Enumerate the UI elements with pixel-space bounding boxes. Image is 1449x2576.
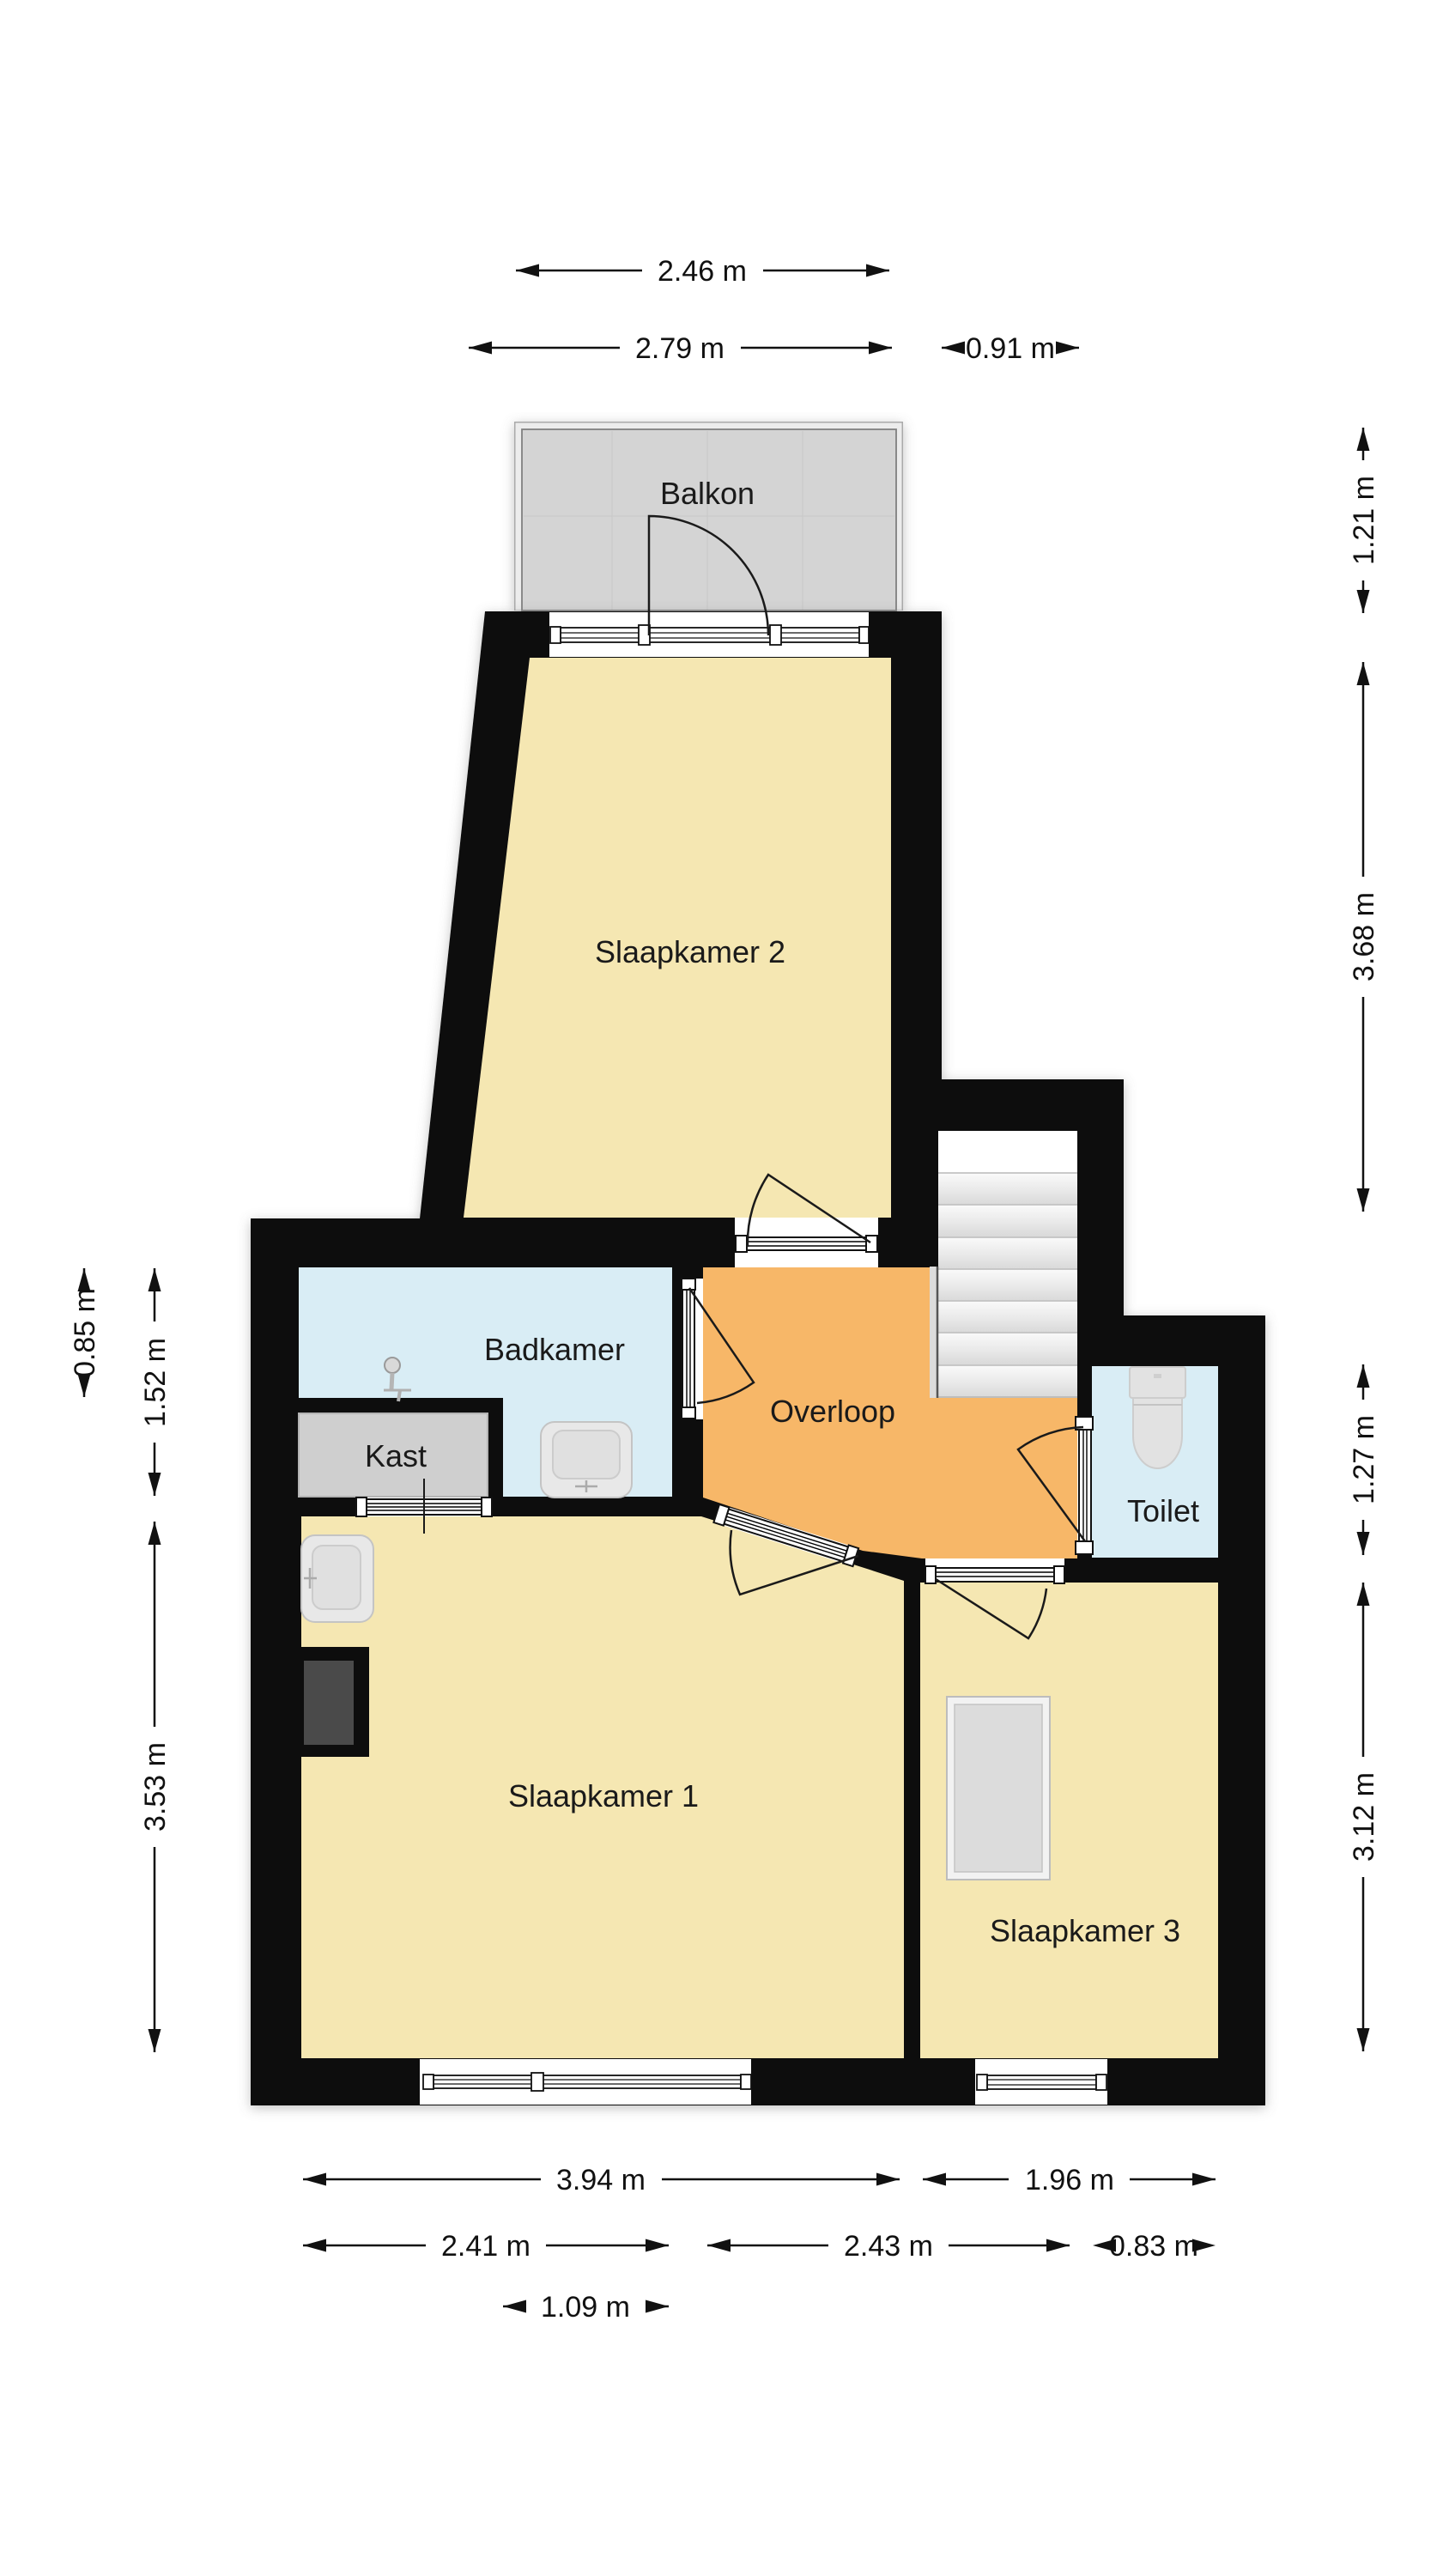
svg-text:3.94 m: 3.94 m <box>556 2164 646 2196</box>
svg-text:Overloop: Overloop <box>770 1394 895 1429</box>
svg-text:1.96 m: 1.96 m <box>1025 2164 1114 2196</box>
svg-text:2.46 m: 2.46 m <box>658 255 747 288</box>
svg-text:2.79 m: 2.79 m <box>635 332 724 365</box>
svg-text:1.21 m: 1.21 m <box>1348 476 1380 565</box>
svg-text:Slaapkamer 2: Slaapkamer 2 <box>595 934 785 969</box>
svg-text:0.85 m: 0.85 m <box>69 1288 101 1377</box>
svg-text:Kast: Kast <box>365 1438 427 1473</box>
svg-text:2.43 m: 2.43 m <box>844 2230 933 2263</box>
svg-text:3.68 m: 3.68 m <box>1348 892 1380 981</box>
svg-text:0.91 m: 0.91 m <box>966 332 1055 365</box>
svg-text:Balkon: Balkon <box>660 476 755 511</box>
svg-text:Badkamer: Badkamer <box>484 1332 625 1367</box>
svg-text:3.53 m: 3.53 m <box>139 1742 172 1832</box>
svg-text:0.83 m: 0.83 m <box>1109 2230 1198 2263</box>
svg-text:3.12 m: 3.12 m <box>1348 1772 1380 1862</box>
svg-text:1.09 m: 1.09 m <box>541 2291 630 2324</box>
svg-text:1.52 m: 1.52 m <box>139 1338 172 1427</box>
svg-text:Slaapkamer 1: Slaapkamer 1 <box>508 1778 699 1814</box>
svg-text:Toilet: Toilet <box>1127 1493 1199 1528</box>
svg-text:Slaapkamer 3: Slaapkamer 3 <box>990 1913 1180 1948</box>
svg-text:1.27 m: 1.27 m <box>1348 1415 1380 1504</box>
svg-text:2.41 m: 2.41 m <box>441 2230 530 2263</box>
